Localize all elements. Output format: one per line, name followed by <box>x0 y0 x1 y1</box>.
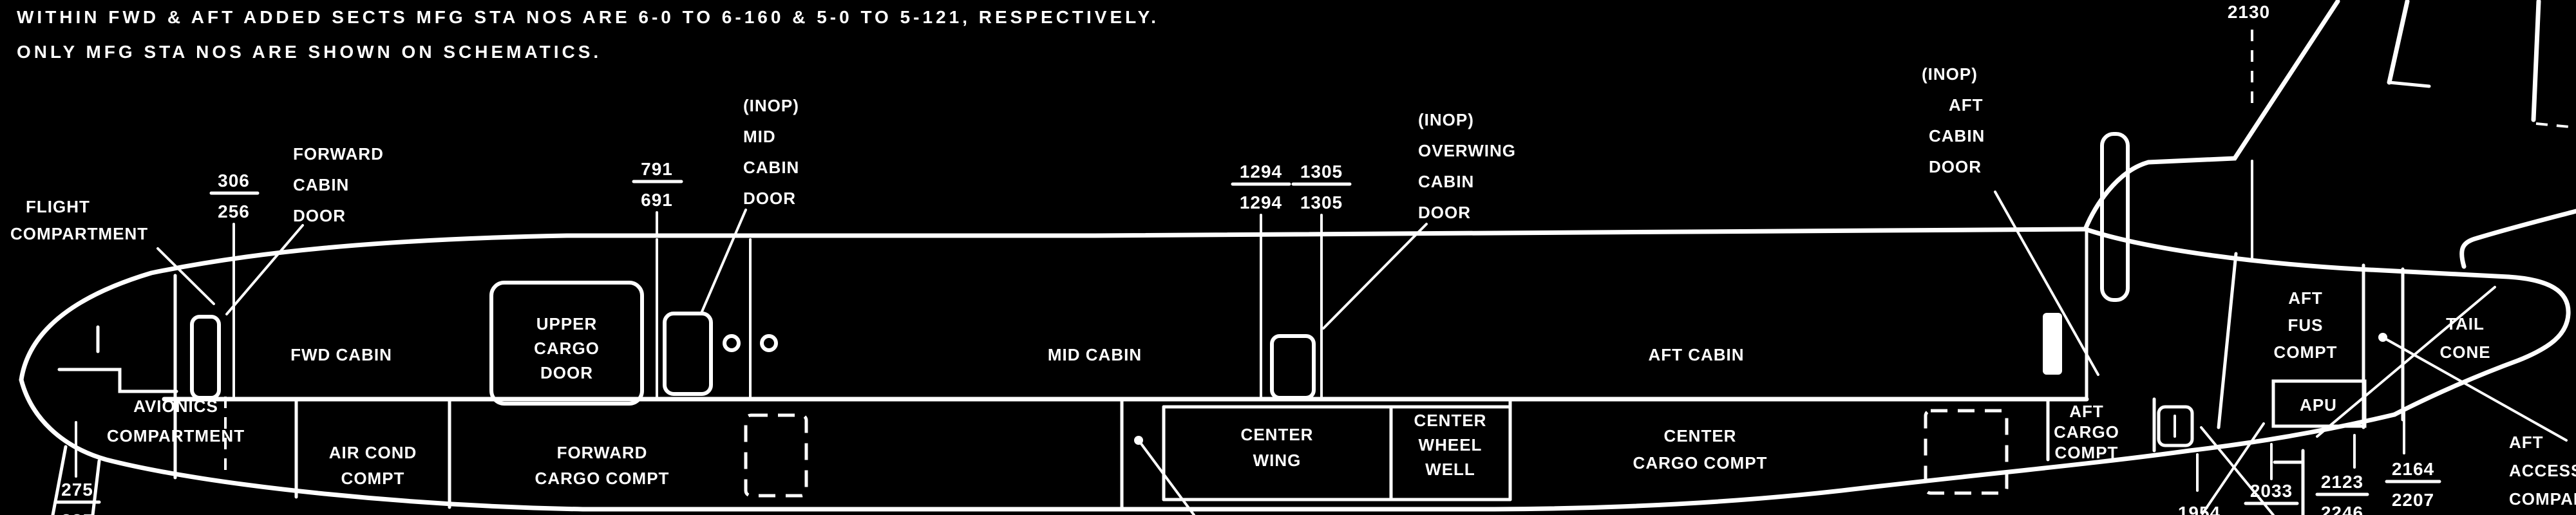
avionics-bay-shelf <box>59 370 176 391</box>
doors <box>192 134 2192 496</box>
center-wheel-well-label: WELL <box>1425 460 1475 479</box>
center-wing-label: WING <box>1253 451 1302 470</box>
window-port-2 <box>762 336 776 350</box>
rudder-trailing-edge <box>2389 1 2407 82</box>
flight-compartment-label: FLIGHT <box>26 197 90 216</box>
note-line-2: ONLY MFG STA NOS ARE SHOWN ON SCHEMATICS… <box>17 42 601 62</box>
overwing-cabin-door <box>1272 336 1314 398</box>
forward-cabin-door-label: FORWARD <box>293 144 384 164</box>
sta-306-num: 306 <box>218 171 250 191</box>
sta-791-num: 791 <box>641 159 673 179</box>
window-port-1 <box>724 336 739 350</box>
aft-cabin-door-filled <box>2043 313 2062 375</box>
mid-cabin-door-leader <box>702 210 746 312</box>
center-wheel-well-label: WHEEL <box>1419 435 1482 454</box>
upper-cargo-door-label: DOOR <box>540 363 593 382</box>
fin-spar-outline <box>2102 134 2128 300</box>
mid-cabin-door-label: (INOP) <box>743 96 799 115</box>
fwd-cabin-label: FWD CABIN <box>290 345 392 364</box>
aft-access-compartment-label: ACCESS <box>2509 461 2576 480</box>
engine2-inlet-edge <box>2533 1 2539 120</box>
sta-2164-den: 2207 <box>2392 490 2434 510</box>
center-cargo-compt-label: CARGO COMPT <box>1633 453 1768 473</box>
sta-275-den: 225 <box>61 510 93 515</box>
sta-2123-den: 2246 <box>2321 503 2363 515</box>
mid-cabin-door-label: MID <box>743 127 776 146</box>
forward-cabin-door-leader <box>227 225 303 314</box>
upper-cargo-door-label: UPPER <box>536 314 598 333</box>
center-cargo-compt-label: CENTER <box>1664 426 1737 445</box>
note-line-1: WITHIN FWD & AFT ADDED SECTS MFG STA NOS… <box>17 7 1159 27</box>
sta-2123-num: 2123 <box>2321 472 2363 492</box>
aft-cargo-compt-label: AFT <box>2069 402 2104 421</box>
sta-306-den: 256 <box>218 201 250 221</box>
overwing-cabin-door-leader <box>1323 224 1426 328</box>
forward-cargo-compt-label: FORWARD <box>557 443 648 462</box>
engine2-inlet-tick <box>2536 124 2576 127</box>
aft-cargo-compt-label: CARGO <box>2054 422 2119 442</box>
avionics-compartment-label: AVIONICS <box>133 397 218 416</box>
fwd-cargo-door-dashed <box>746 415 806 496</box>
gear-leader <box>1139 440 1194 515</box>
aft-cabin-door-label: (INOP) <box>1922 64 1978 84</box>
tail-cone-label: TAIL <box>2446 314 2485 333</box>
center-wheel-well-label: CENTER <box>1414 411 1487 430</box>
upper-cargo-door-label: CARGO <box>534 339 600 358</box>
center-wing-label: CENTER <box>1241 425 1314 444</box>
aft-fus-compt-label: FUS <box>2288 315 2324 335</box>
flight-compartment-leader <box>158 248 214 304</box>
tail-cone-label: CONE <box>2439 342 2490 362</box>
mid-cabin-door-label: CABIN <box>743 158 799 177</box>
mid-cabin-label: MID CABIN <box>1048 345 1142 364</box>
aft-fus-compt-label: COMPT <box>2274 342 2338 362</box>
sta-1305-den: 1305 <box>1300 192 1343 212</box>
mid-cabin-door <box>665 314 711 394</box>
aft-fus-compt-label: AFT <box>2288 288 2323 308</box>
nose-gear-strut-aft <box>93 461 99 515</box>
overwing-cabin-door-label: OVERWING <box>1418 141 1516 160</box>
sta-2033-den: 2156 <box>2250 512 2293 515</box>
engine2-pod-lower-line <box>2462 211 2576 267</box>
vertical-fin-leading-edge <box>2085 1 2338 229</box>
air-cond-compt-label: AIR COND <box>329 443 417 462</box>
aft-cabin-label: AFT CABIN <box>1648 345 1744 364</box>
overwing-cabin-door-label: DOOR <box>1418 203 1471 222</box>
aft-cabin-door-label: DOOR <box>1929 157 1982 176</box>
sta-791-den: 691 <box>641 190 673 210</box>
forward-cabin-door-label: CABIN <box>293 175 349 194</box>
aft-fus-compt-fwd-wall <box>2219 254 2236 427</box>
aft-cabin-door-label: CABIN <box>1929 126 1985 145</box>
fuselage-station-diagram: WITHIN FWD & AFT ADDED SECTS MFG STA NOS… <box>0 0 2576 515</box>
sta-1954-num: 1954 <box>2178 503 2221 515</box>
sta-275-num: 275 <box>61 480 93 500</box>
aft-cargo-compt-label: COMPT <box>2055 443 2119 462</box>
aft-cabin-door-label: AFT <box>1949 95 1984 115</box>
apu-label: APU <box>2300 395 2337 415</box>
tailcone-leader <box>2317 287 2495 436</box>
leaders <box>158 192 2566 515</box>
aft-access-compartment-label: AFT <box>2509 433 2544 452</box>
mid-cabin-door-label: DOOR <box>743 189 796 208</box>
forward-cargo-compt-label: CARGO COMPT <box>535 469 670 488</box>
sta-2164-num: 2164 <box>2392 459 2434 479</box>
sta-1294-num: 1294 <box>1240 162 1282 182</box>
overwing-cabin-door-label: (INOP) <box>1418 110 1474 129</box>
rudder-base-tick <box>2389 82 2429 86</box>
aft-access-compartment-label: COMPARTMENT <box>2509 489 2576 509</box>
forward-cabin-door <box>192 317 219 398</box>
sta-1294-den: 1294 <box>1240 192 1282 212</box>
forward-cabin-door-label: DOOR <box>293 206 346 225</box>
aft-fuselage-top-contour <box>2085 229 2508 277</box>
avionics-compartment-label: COMPARTMENT <box>107 426 245 445</box>
sta-2130-num: 2130 <box>2228 2 2270 22</box>
air-cond-compt-label: COMPT <box>341 469 405 488</box>
flight-compartment-label: COMPARTMENT <box>10 224 148 243</box>
sta-1305-num: 1305 <box>1300 162 1343 182</box>
overwing-cabin-door-label: CABIN <box>1418 172 1474 191</box>
sta-2033-num: 2033 <box>2250 481 2293 501</box>
